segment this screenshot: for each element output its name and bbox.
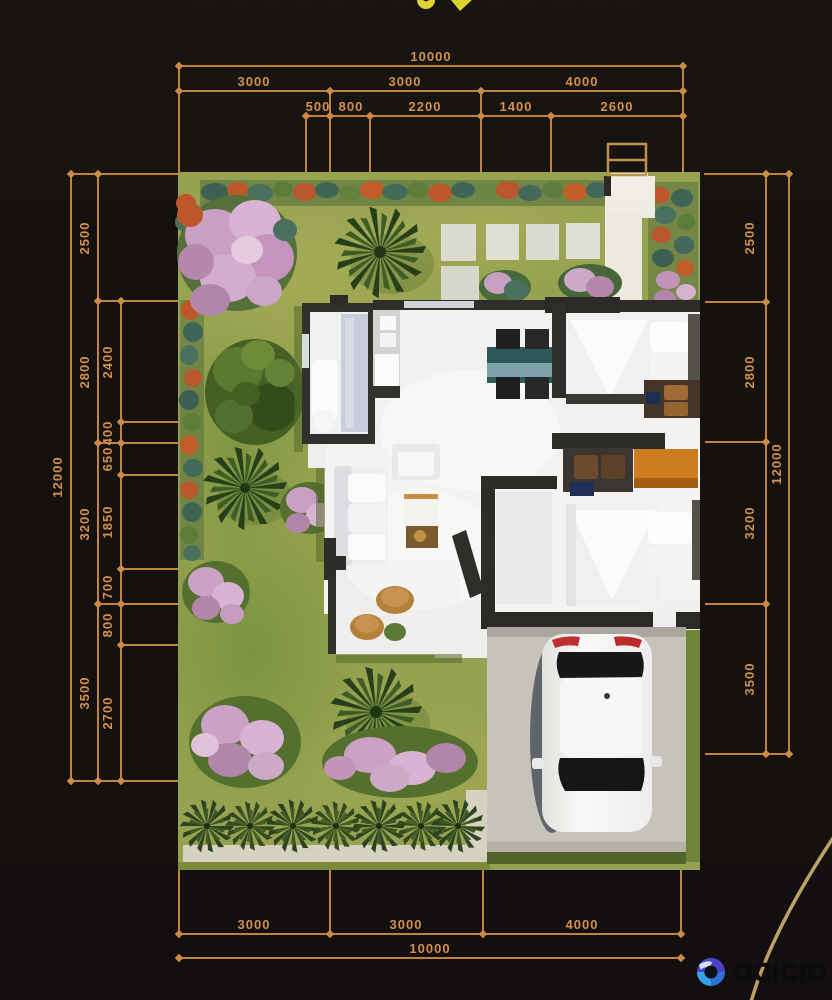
svg-text:12000: 12000 [769, 443, 784, 484]
svg-text:3500: 3500 [742, 663, 757, 696]
svg-text:3000: 3000 [389, 74, 422, 89]
svg-text:3500: 3500 [77, 677, 92, 710]
svg-text:2500: 2500 [742, 222, 757, 255]
svg-text:800: 800 [100, 613, 115, 638]
svg-text:3000: 3000 [238, 74, 271, 89]
svg-text:10000: 10000 [409, 941, 450, 956]
svg-text:2600: 2600 [601, 99, 634, 114]
svg-text:3000: 3000 [238, 917, 271, 932]
svg-text:1850: 1850 [100, 506, 115, 539]
svg-text:650: 650 [100, 447, 115, 472]
svg-text:OCICIO: OCICIO [733, 959, 828, 987]
svg-text:4000: 4000 [566, 74, 599, 89]
svg-text:10000: 10000 [410, 49, 451, 64]
svg-text:2500: 2500 [77, 222, 92, 255]
svg-text:3200: 3200 [742, 507, 757, 540]
svg-text:400: 400 [100, 421, 115, 446]
svg-text:2400: 2400 [100, 346, 115, 379]
svg-text:12000: 12000 [50, 456, 65, 497]
svg-text:500: 500 [306, 99, 331, 114]
svg-text:2700: 2700 [100, 697, 115, 730]
svg-text:3000: 3000 [390, 917, 423, 932]
svg-text:3200: 3200 [77, 508, 92, 541]
svg-text:4000: 4000 [566, 917, 599, 932]
svg-text:800: 800 [339, 99, 364, 114]
svg-text:1400: 1400 [500, 99, 533, 114]
svg-text:2200: 2200 [409, 99, 442, 114]
svg-text:700: 700 [100, 575, 115, 600]
svg-text:2800: 2800 [77, 356, 92, 389]
svg-text:2800: 2800 [742, 356, 757, 389]
